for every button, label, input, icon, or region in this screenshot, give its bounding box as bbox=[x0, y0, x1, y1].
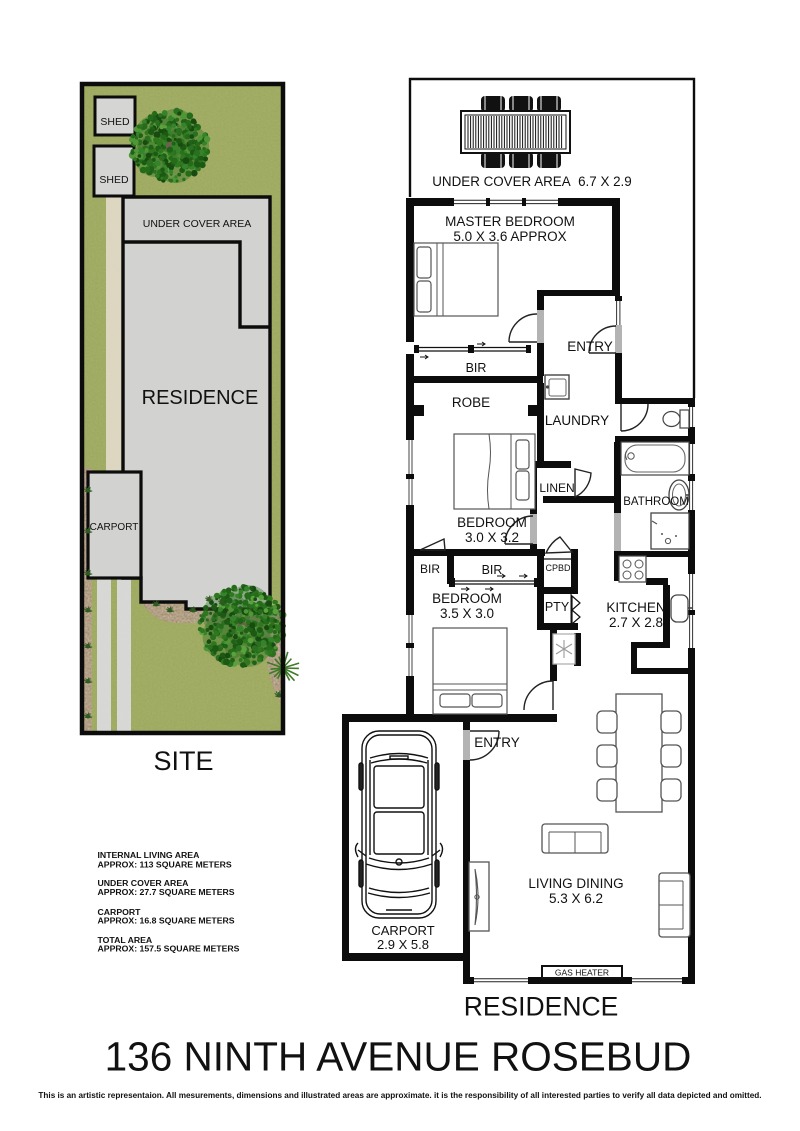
svg-text:2.7 X 2.8: 2.7 X 2.8 bbox=[609, 615, 663, 630]
svg-text:RESIDENCE: RESIDENCE bbox=[142, 387, 259, 409]
svg-text:ENTRY: ENTRY bbox=[474, 735, 520, 750]
svg-text:ENTRY: ENTRY bbox=[567, 339, 613, 354]
svg-text:LIVING DINING: LIVING DINING bbox=[528, 876, 623, 891]
svg-text:5.3 X 6.2: 5.3 X 6.2 bbox=[549, 891, 603, 906]
svg-text:APPROX: 16.8 SQUARE METERS: APPROX: 16.8 SQUARE METERS bbox=[98, 916, 235, 926]
svg-text:This is an artistic representa: This is an artistic representaion. All m… bbox=[38, 1091, 761, 1100]
svg-text:APPROX: 27.7 SQUARE METERS: APPROX: 27.7 SQUARE METERS bbox=[98, 887, 235, 897]
svg-text:CARPORT: CARPORT bbox=[371, 923, 434, 938]
svg-text:BIR: BIR bbox=[420, 562, 440, 576]
svg-text:SHED: SHED bbox=[99, 174, 129, 186]
svg-text:ROBE: ROBE bbox=[452, 395, 490, 410]
svg-text:SHED: SHED bbox=[100, 116, 130, 128]
svg-text:UNDER COVER AREA: UNDER COVER AREA bbox=[143, 218, 252, 230]
svg-text:LAUNDRY: LAUNDRY bbox=[545, 413, 609, 428]
svg-text:GAS HEATER: GAS HEATER bbox=[555, 968, 609, 978]
svg-text:UNDER COVER AREA 6.7 X 2.9: UNDER COVER AREA 6.7 X 2.9 bbox=[432, 174, 631, 189]
svg-text:BEDROOM: BEDROOM bbox=[457, 515, 527, 530]
svg-text:APPROX: 157.5 SQUARE METERS: APPROX: 157.5 SQUARE METERS bbox=[98, 944, 240, 954]
svg-text:CARPORT: CARPORT bbox=[90, 522, 139, 533]
svg-text:BEDROOM: BEDROOM bbox=[432, 591, 502, 606]
svg-text:CPBD: CPBD bbox=[545, 563, 571, 573]
svg-text:3.0 X 3.2: 3.0 X 3.2 bbox=[465, 530, 519, 545]
svg-text:MASTER BEDROOM: MASTER BEDROOM bbox=[445, 214, 575, 229]
svg-text:LINEN: LINEN bbox=[539, 481, 574, 495]
svg-text:KITCHEN: KITCHEN bbox=[606, 600, 665, 615]
svg-text:RESIDENCE: RESIDENCE bbox=[464, 992, 619, 1022]
svg-text:SITE: SITE bbox=[153, 746, 213, 776]
svg-text:BIR: BIR bbox=[466, 361, 487, 375]
svg-text:BATHROOM: BATHROOM bbox=[623, 496, 689, 508]
svg-text:APPROX: 113 SQUARE METERS: APPROX: 113 SQUARE METERS bbox=[98, 860, 232, 870]
svg-text:2.9 X 5.8: 2.9 X 5.8 bbox=[377, 937, 429, 952]
svg-text:3.5 X 3.0: 3.5 X 3.0 bbox=[440, 606, 494, 621]
svg-text:5.0 X 3.6 APPROX: 5.0 X 3.6 APPROX bbox=[453, 229, 566, 244]
svg-text:136 NINTH AVENUE ROSEBUD: 136 NINTH AVENUE ROSEBUD bbox=[105, 1034, 692, 1080]
svg-text:INTERNAL LIVING AREA: INTERNAL LIVING AREA bbox=[98, 850, 201, 860]
svg-text:BIR: BIR bbox=[482, 563, 503, 577]
svg-text:PTY: PTY bbox=[545, 600, 570, 614]
